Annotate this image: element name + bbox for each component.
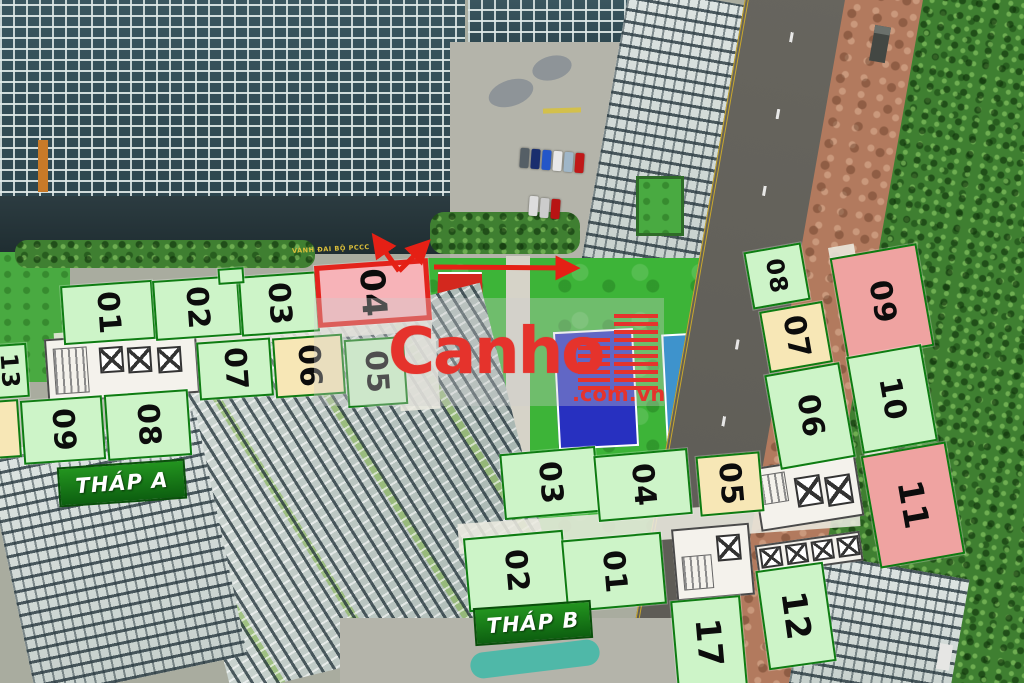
car [550, 199, 560, 220]
elevator-shaft [836, 535, 861, 558]
unit-partial-left [0, 399, 22, 459]
car [541, 150, 551, 171]
entrance-sign [38, 140, 48, 192]
unit-label: 13 [0, 353, 23, 390]
unit-thap-a-row2-07: 07 [196, 337, 274, 400]
elevator-shaft [127, 346, 153, 374]
floorplan-core [671, 523, 755, 602]
elevator-shaft [824, 473, 854, 507]
car [552, 151, 562, 172]
elevator-shaft [716, 534, 742, 562]
unit-thap-a-row2-13: 13 [0, 343, 30, 399]
unit-label: 11 [892, 478, 934, 532]
unit-label: 03 [533, 460, 567, 506]
aerial-site-plan: 01 02 03 04 13 07 06 05 09 08 08 07 06 0… [0, 0, 1024, 683]
unit-thap-b-top-04: 04 [593, 448, 692, 522]
elevator-shaft [759, 546, 784, 569]
building-top-left [0, 0, 465, 215]
unit-label: 06 [791, 392, 828, 440]
unit-label: 03 [263, 281, 296, 327]
unit-label: 08 [132, 402, 165, 448]
unit-label: 02 [499, 548, 533, 594]
elevator-shaft [810, 539, 835, 562]
tree-row-top [15, 240, 315, 268]
unit-thap-b-top-03: 03 [499, 446, 600, 520]
unit-thap-a-top-02: 02 [152, 275, 242, 341]
watermark-domain: .com.vn [572, 382, 665, 406]
building-bars-icon [578, 312, 658, 390]
unit-thap-b-bottom-17: 17 [670, 595, 748, 683]
unit-thap-a-left-08: 08 [104, 389, 192, 461]
unit-label: 05 [713, 461, 747, 507]
unit-thap-b-bottom-12: 12 [755, 562, 836, 670]
unit-thap-b-top-05: 05 [696, 451, 765, 516]
elevator-shaft [785, 542, 810, 565]
car [528, 196, 538, 217]
unit-thap-a-top-01: 01 [60, 280, 156, 345]
car [574, 153, 584, 174]
car [519, 148, 529, 169]
unit-right-col-08: 08 [743, 242, 810, 309]
unit-thap-a-left-09: 09 [20, 395, 106, 465]
car [530, 149, 540, 170]
unit-right-outer-09: 09 [830, 243, 935, 361]
unit-thap-a-top-03: 03 [238, 271, 320, 336]
unit-notch [217, 267, 244, 285]
elevator-shaft [794, 474, 824, 508]
unit-label: 09 [47, 407, 80, 453]
unit-label: 07 [219, 346, 252, 392]
unit-label: 01 [92, 290, 125, 336]
unit-thap-b-mid-02: 02 [463, 530, 569, 612]
unit-label: 02 [181, 285, 214, 331]
unit-label: 10 [873, 375, 910, 423]
unit-label: 12 [776, 589, 817, 643]
unit-right-col-07: 07 [759, 301, 833, 373]
green-roof-patch [636, 176, 684, 236]
unit-label: 08 [762, 256, 792, 295]
unit-label: 04 [626, 462, 660, 508]
car [563, 152, 573, 173]
elevator-shaft [99, 346, 125, 374]
car [539, 198, 549, 219]
unit-right-col-06: 06 [764, 362, 856, 470]
unit-label: 01 [597, 549, 631, 595]
watermark-brand: Canho [388, 320, 603, 384]
unit-label: 07 [777, 313, 814, 361]
unit-label: 09 [863, 278, 900, 326]
unit-label: 17 [690, 617, 728, 669]
elevator-shaft [157, 346, 183, 374]
